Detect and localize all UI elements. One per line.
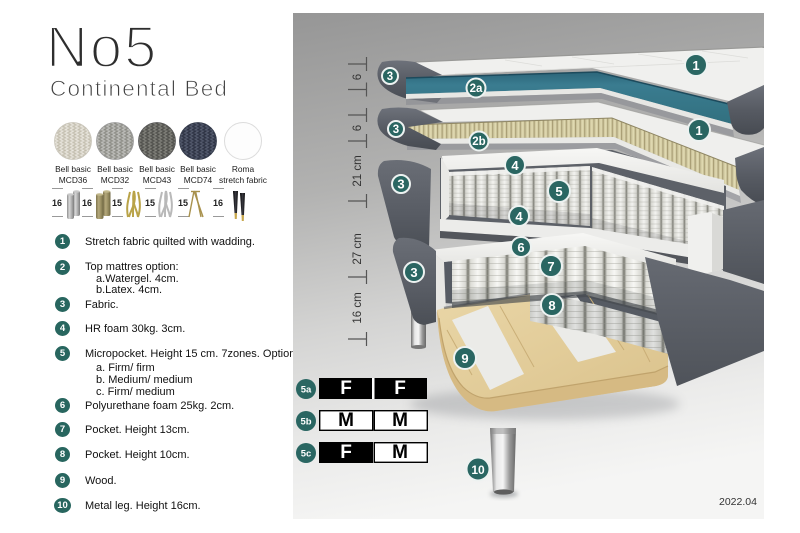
svg-text:15: 15 bbox=[178, 198, 188, 208]
svg-text:2a: 2a bbox=[470, 83, 483, 95]
svg-text:1: 1 bbox=[692, 58, 699, 73]
svg-text:10: 10 bbox=[471, 463, 485, 477]
svg-text:3: 3 bbox=[410, 265, 417, 280]
svg-text:3: 3 bbox=[387, 71, 393, 83]
svg-text:2b: 2b bbox=[472, 136, 485, 148]
svg-text:5c: 5c bbox=[301, 449, 312, 460]
svg-text:5a: 5a bbox=[301, 385, 312, 396]
svg-text:4: 4 bbox=[511, 158, 519, 173]
svg-text:6: 6 bbox=[517, 240, 524, 255]
svg-text:M: M bbox=[392, 442, 408, 463]
svg-text:16: 16 bbox=[52, 198, 62, 208]
svg-text:6: 6 bbox=[352, 125, 364, 131]
svg-text:5: 5 bbox=[555, 184, 562, 199]
svg-text:M: M bbox=[338, 410, 354, 431]
svg-text:F: F bbox=[394, 378, 406, 399]
svg-text:F: F bbox=[340, 378, 352, 399]
svg-text:7: 7 bbox=[547, 259, 554, 274]
svg-text:16: 16 bbox=[82, 198, 92, 208]
svg-text:9: 9 bbox=[461, 351, 468, 366]
svg-text:6: 6 bbox=[352, 74, 364, 80]
svg-text:27 cm: 27 cm bbox=[352, 233, 364, 264]
svg-text:16: 16 bbox=[213, 198, 223, 208]
svg-text:1: 1 bbox=[695, 123, 702, 138]
svg-text:16 cm: 16 cm bbox=[352, 292, 364, 323]
svg-text:3: 3 bbox=[397, 177, 404, 192]
svg-text:5b: 5b bbox=[300, 417, 311, 428]
svg-text:F: F bbox=[340, 442, 352, 463]
svg-text:3: 3 bbox=[393, 124, 399, 136]
svg-text:2022.04: 2022.04 bbox=[719, 496, 757, 508]
svg-text:21 cm: 21 cm bbox=[352, 155, 364, 186]
svg-text:8: 8 bbox=[548, 298, 555, 313]
svg-text:4: 4 bbox=[515, 209, 523, 224]
svg-text:M: M bbox=[392, 410, 408, 431]
svg-text:15: 15 bbox=[145, 198, 155, 208]
svg-text:15: 15 bbox=[112, 198, 122, 208]
